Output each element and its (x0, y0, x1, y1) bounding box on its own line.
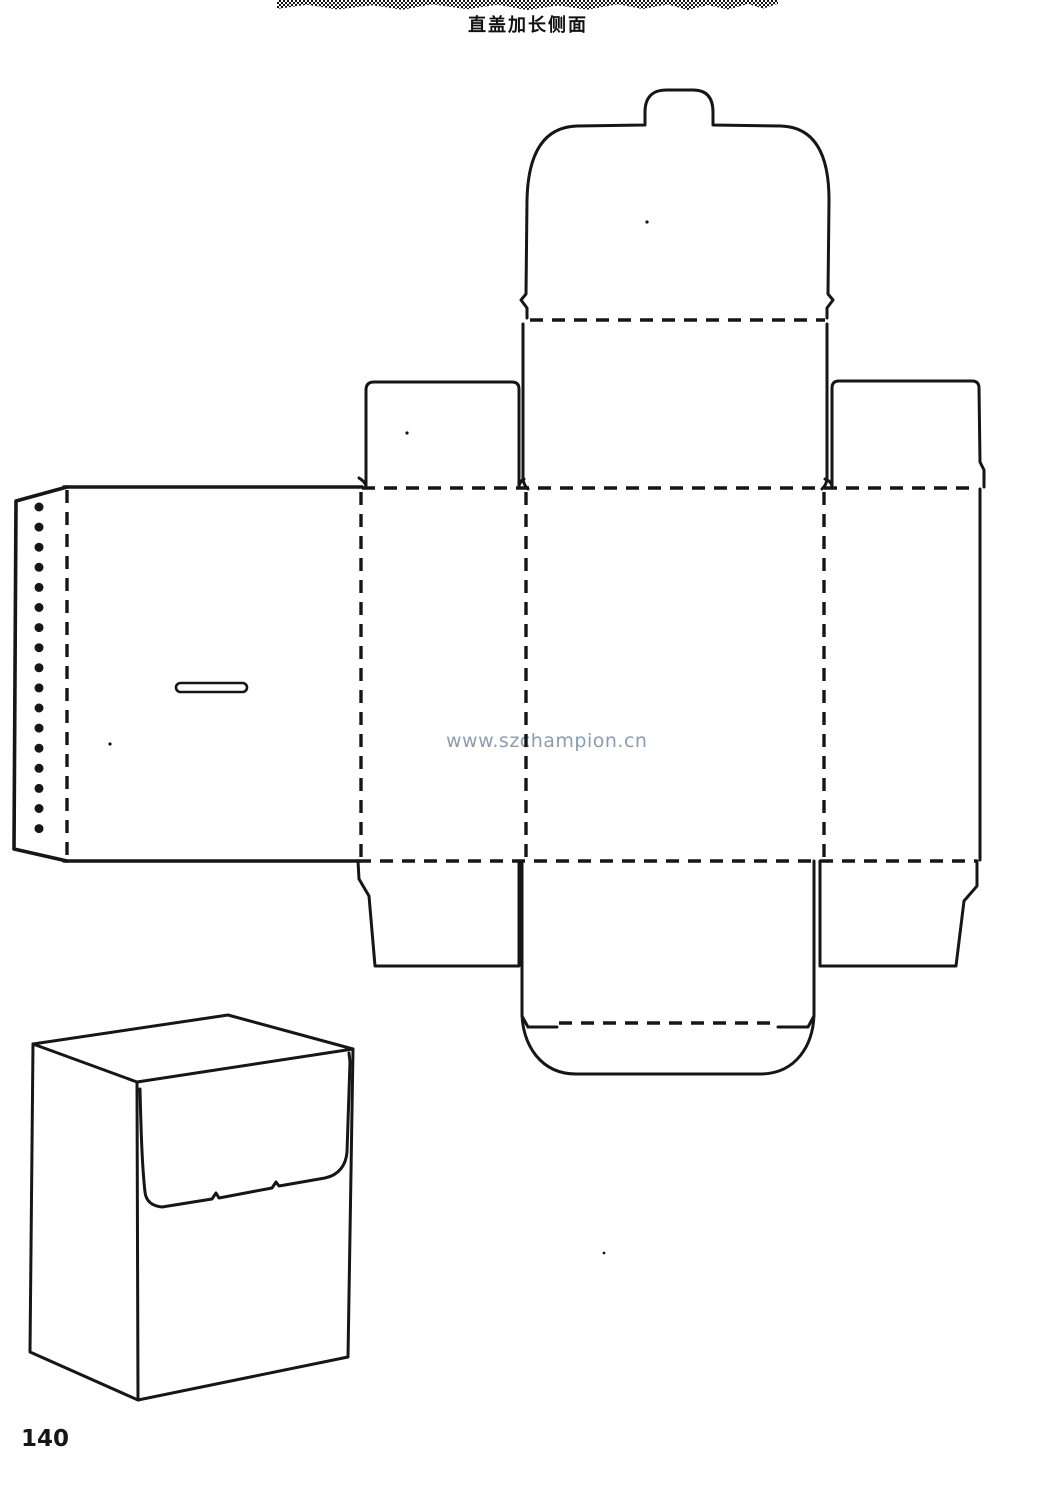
book-page: 直盖加长侧面 www.szchampion.cn (0, 0, 1056, 1498)
glue-flap (14, 487, 67, 861)
bottom-dust-flap-right (820, 861, 977, 966)
top-panel (523, 324, 827, 489)
top-dust-flap-right (825, 381, 984, 487)
handle-slit (176, 683, 247, 692)
bottom-tuck-flap (522, 861, 814, 1074)
top-tuck-flap (521, 90, 833, 320)
dieline-drawing (0, 0, 1056, 1498)
assembled-box-preview (30, 1015, 353, 1400)
top-dust-flap-left (359, 382, 524, 486)
page-number: 140 (21, 1426, 69, 1452)
main-panel-band (14, 487, 980, 861)
bottom-dust-flap-left (358, 861, 519, 966)
scan-specks (108, 220, 648, 1254)
